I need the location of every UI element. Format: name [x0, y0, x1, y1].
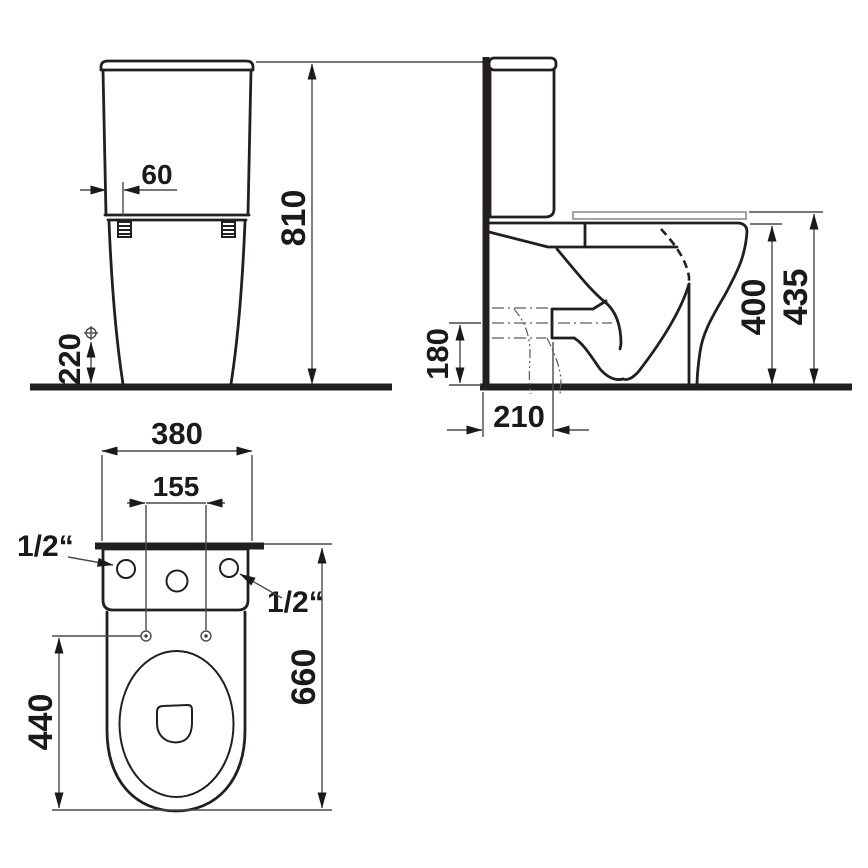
plan-cistern-outline — [103, 549, 248, 610]
plan-view: 380 155 440 660 1/2“ 1/2“ — [17, 416, 332, 811]
toilet-dimension-drawing: 60 810 220 — [0, 0, 868, 868]
dim-label-435: 435 — [777, 269, 815, 326]
label-inlet-left: 1/2“ — [17, 530, 74, 563]
dim-label-60: 60 — [141, 159, 172, 190]
plan-flush-water-area — [157, 705, 192, 743]
side-spigot-top-join — [593, 301, 606, 309]
plan-inlet-hole-left — [117, 560, 135, 578]
side-hidden-bowl-edge — [661, 229, 689, 283]
dim-label-220: 220 — [52, 333, 87, 385]
front-bolt-right — [222, 222, 235, 237]
front-cistern-body — [103, 70, 251, 215]
side-bowl-interior-curve — [557, 249, 621, 349]
leader-inlet-left — [68, 557, 113, 565]
dim-label-400: 400 — [735, 279, 773, 336]
side-sump-front-curve — [623, 284, 689, 380]
side-trap-bottom-curve — [574, 338, 623, 380]
plan-bowl-rim — [120, 651, 234, 797]
dim-label-810: 810 — [275, 190, 313, 247]
front-cistern-bottom — [105, 215, 249, 220]
front-bowl-right-edge — [231, 222, 245, 384]
dim-label-660: 660 — [285, 649, 323, 706]
plan-bowl-outline — [107, 612, 245, 811]
front-bolt-left — [118, 222, 131, 237]
technical-drawing-page: 60 810 220 — [0, 0, 868, 868]
dim-label-155: 155 — [153, 471, 200, 502]
plan-center-hole — [167, 571, 188, 592]
label-inlet-right: 1/2“ — [267, 586, 324, 619]
dim-label-210: 210 — [493, 399, 545, 434]
side-seat-profile — [573, 212, 746, 219]
dim-label-180: 180 — [420, 328, 455, 380]
plan-inlet-hole-right — [220, 559, 238, 577]
dim-label-440: 440 — [22, 694, 60, 751]
front-bowl-left-edge — [109, 222, 123, 384]
dim-label-380: 380 — [151, 416, 203, 451]
plan-seat-fixing-hole-left — [141, 631, 151, 641]
side-view: 180 210 400 435 — [420, 57, 852, 437]
front-cistern-lid — [101, 61, 253, 70]
plan-seat-fixing-hole-right — [201, 631, 211, 641]
side-floor-outlet-hidden-left — [514, 309, 531, 394]
side-rim-underside — [489, 232, 677, 247]
side-cistern-lid — [489, 58, 556, 70]
front-view: 60 810 220 — [30, 61, 483, 387]
side-cistern-body — [490, 70, 554, 217]
